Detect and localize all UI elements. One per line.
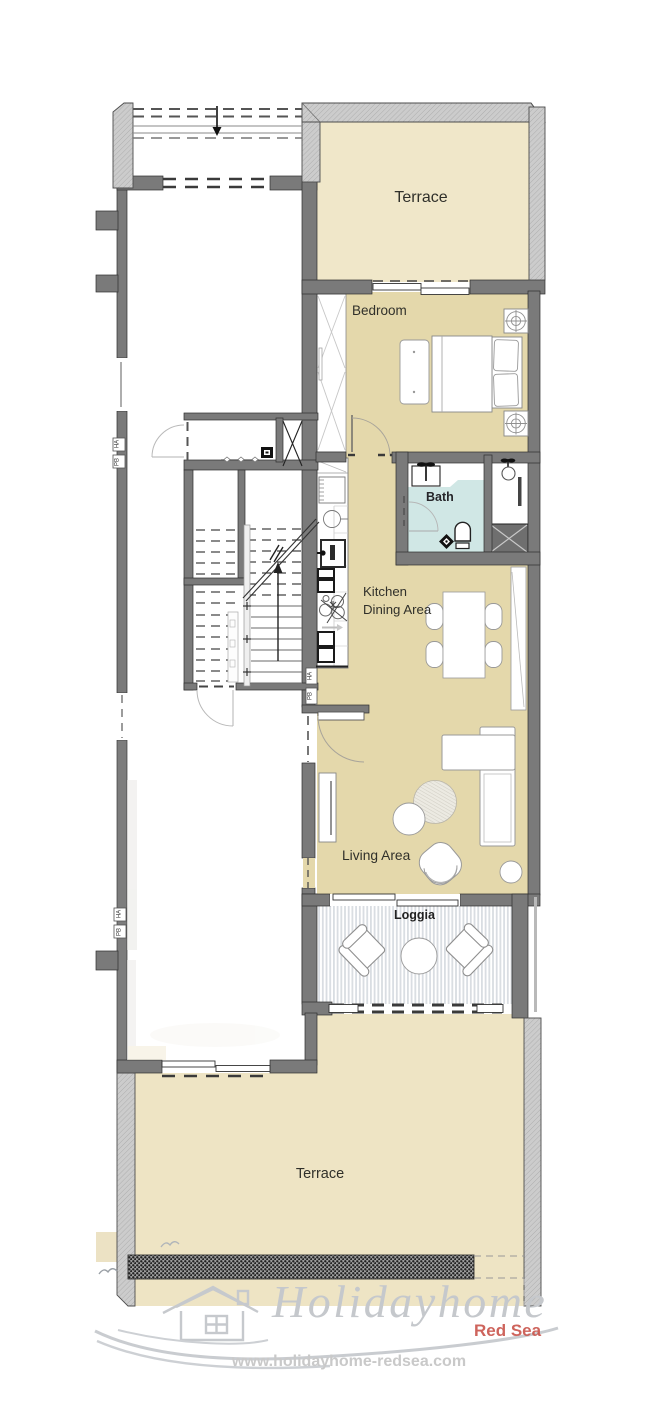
svg-text:HA: HA xyxy=(117,910,123,918)
svg-text:Terrace: Terrace xyxy=(394,189,447,206)
svg-text:HA: HA xyxy=(115,440,121,448)
svg-text:Dining Area: Dining Area xyxy=(363,602,432,617)
svg-text:PB: PB xyxy=(308,692,314,700)
svg-text:Holidayhome: Holidayhome xyxy=(271,1276,547,1327)
svg-text:Bedroom: Bedroom xyxy=(352,303,407,318)
svg-text:www.holidayhome-redsea.com: www.holidayhome-redsea.com xyxy=(231,1353,466,1370)
svg-text:Loggia: Loggia xyxy=(394,908,436,922)
svg-text:PB: PB xyxy=(117,928,123,936)
svg-text:Bath: Bath xyxy=(426,490,454,504)
svg-text:Kitchen: Kitchen xyxy=(363,584,407,599)
svg-text:Red Sea: Red Sea xyxy=(474,1321,542,1340)
svg-text:Terrace: Terrace xyxy=(296,1166,344,1182)
svg-text:HA: HA xyxy=(308,672,314,680)
svg-text:PB: PB xyxy=(115,458,121,466)
svg-text:Living Area: Living Area xyxy=(342,848,411,863)
